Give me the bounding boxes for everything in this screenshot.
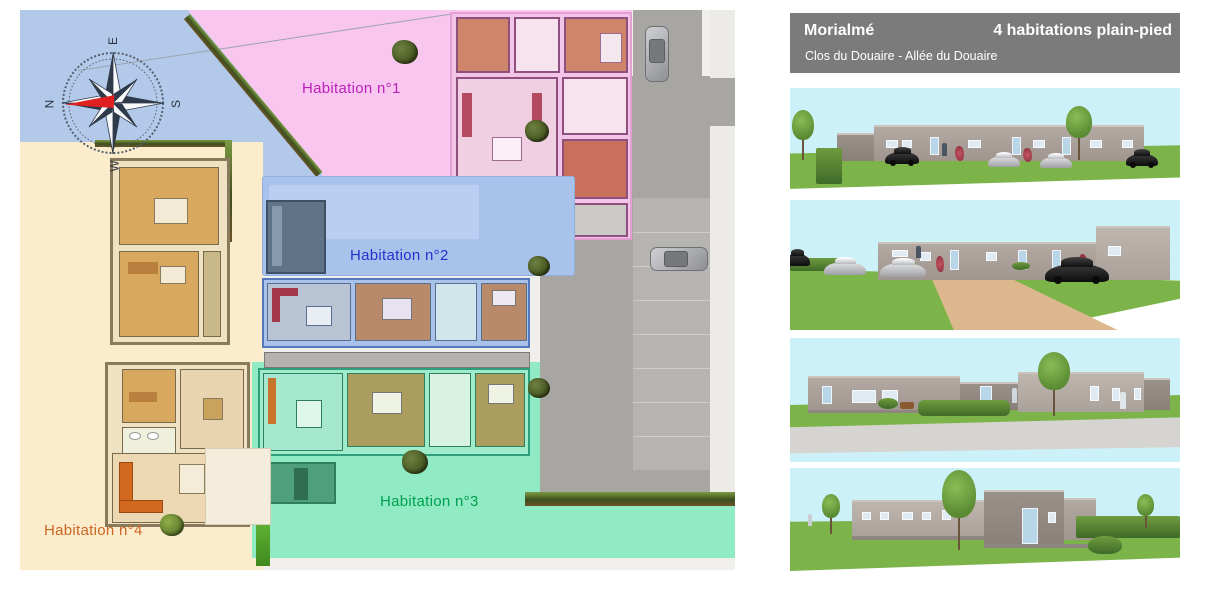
room-living	[267, 283, 351, 341]
hedge	[918, 400, 1010, 416]
brochure-page: Habitation n°2	[0, 0, 1208, 594]
tree-crown	[822, 494, 840, 518]
elevation-render-1	[790, 88, 1180, 192]
building	[1144, 378, 1170, 410]
label-habitation-3: Habitation n°3	[380, 493, 479, 510]
room-bedroom	[481, 283, 527, 341]
red-shrub	[1023, 148, 1032, 162]
car-icon	[650, 247, 708, 271]
tree-crown	[1137, 494, 1154, 516]
compass-west: W	[108, 160, 122, 171]
tree-icon	[528, 378, 550, 398]
hab4-floorplan-upper	[110, 158, 230, 345]
person	[916, 246, 921, 258]
sofa	[119, 500, 163, 513]
car-icon	[880, 263, 926, 277]
label-habitation-1: Habitation n°1	[302, 80, 401, 97]
car-icon	[790, 254, 810, 266]
bush	[1088, 536, 1122, 554]
parking-line	[633, 436, 710, 437]
hedge	[1076, 516, 1180, 538]
building-base	[984, 544, 1096, 548]
tree-icon	[160, 514, 184, 536]
parking-line	[633, 368, 710, 369]
compass-north: N	[42, 100, 56, 109]
bush	[878, 398, 898, 409]
city-name: Morialmé	[804, 22, 874, 40]
room-kitchen-hab3	[262, 462, 336, 504]
parking-line	[633, 402, 710, 403]
parking-line	[633, 334, 710, 335]
parking-line	[633, 232, 710, 233]
car-icon	[1045, 264, 1109, 282]
label-habitation-2: Habitation n°2	[350, 247, 449, 264]
room	[514, 17, 560, 73]
red-shrub	[955, 146, 964, 161]
car-icon	[1040, 157, 1072, 168]
room-living	[263, 373, 343, 451]
garden-table	[900, 402, 914, 409]
building-base	[852, 536, 984, 540]
room	[456, 17, 510, 73]
table	[179, 464, 205, 494]
room-bedroom	[347, 373, 425, 447]
tree-crown	[1038, 352, 1070, 390]
room-bathroom	[429, 373, 471, 447]
compass-east: E	[106, 37, 120, 45]
title-bar: Morialmé 4 habitations plain-pied Clos d…	[790, 13, 1180, 73]
room-bathroom	[435, 283, 477, 341]
room-office	[122, 369, 176, 423]
room-bedroom	[119, 167, 219, 245]
car-icon	[824, 262, 866, 275]
bush	[1012, 262, 1030, 270]
site-plan: Habitation n°2	[20, 10, 735, 570]
room-bedroom	[355, 283, 431, 341]
room-bedroom	[475, 373, 525, 447]
compass-south: S	[169, 100, 183, 108]
tree-crown	[792, 110, 814, 140]
car-icon	[645, 26, 669, 82]
room-closet	[203, 251, 221, 337]
address: Clos du Douaire - Allée du Douaire	[805, 49, 997, 63]
terrace-hab4	[205, 448, 271, 525]
room-hall	[180, 369, 244, 449]
person	[1012, 388, 1017, 403]
person	[1120, 392, 1126, 409]
hedge	[816, 148, 842, 184]
person	[942, 143, 947, 156]
label-habitation-4: Habitation n°4	[44, 522, 143, 539]
tree-icon	[525, 120, 549, 142]
building	[837, 133, 875, 161]
room	[562, 77, 628, 135]
parking-line	[633, 300, 710, 301]
hab2-floorplan	[262, 278, 530, 348]
car-icon	[885, 152, 919, 164]
room-bedroom	[119, 251, 199, 337]
hedge-parking-bottom	[525, 492, 735, 506]
room	[564, 17, 628, 73]
garden-wall	[264, 352, 530, 368]
project-title: 4 habitations plain-pied	[993, 22, 1172, 40]
tree-icon	[528, 256, 550, 276]
tree-icon	[402, 450, 428, 474]
elevation-render-3	[790, 338, 1180, 462]
hab3-floorplan	[258, 368, 530, 456]
person	[808, 514, 812, 526]
car-icon	[988, 156, 1020, 167]
tree-crown	[1066, 106, 1092, 138]
compass-rose: E N S W	[48, 38, 178, 168]
elevation-render-2	[790, 200, 1180, 330]
car-icon	[1126, 154, 1158, 166]
tree-icon	[392, 40, 418, 64]
elevation-render-4	[790, 468, 1180, 580]
red-shrub	[936, 256, 944, 272]
room-kitchen-hab2	[266, 200, 326, 274]
tree-crown	[942, 470, 976, 518]
